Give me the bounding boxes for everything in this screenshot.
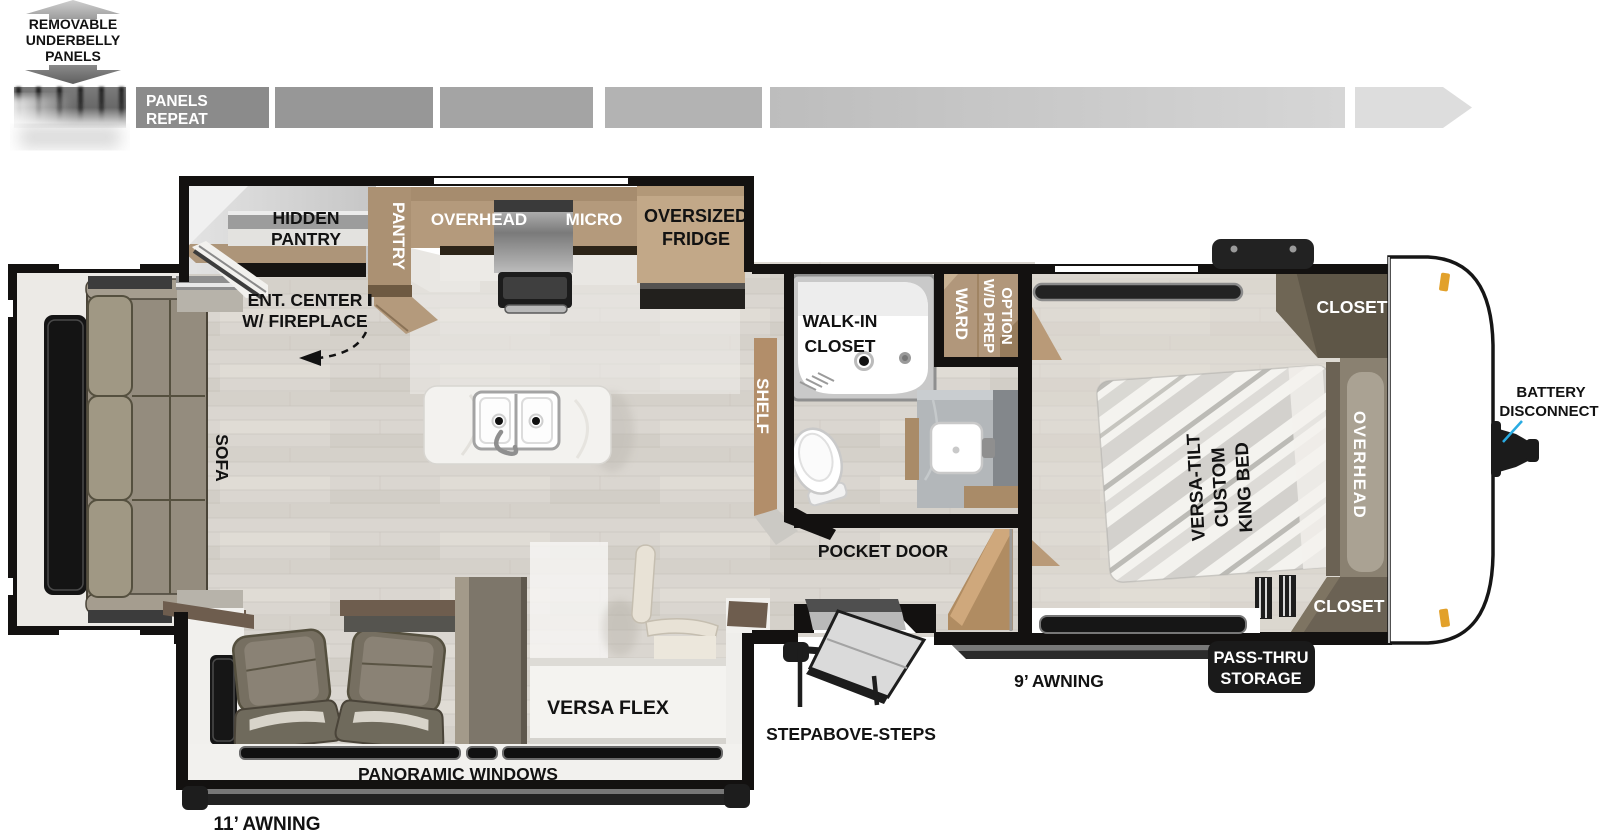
svg-text:OVERHEAD: OVERHEAD [1350, 411, 1369, 519]
svg-text:REPEAT: REPEAT [146, 111, 208, 128]
svg-text:BATTERY: BATTERY [1516, 384, 1585, 401]
svg-text:PANORAMIC WINDOWS: PANORAMIC WINDOWS [358, 764, 558, 784]
svg-text:PASS-THRU: PASS-THRU [1213, 649, 1308, 667]
svg-text:MICRO: MICRO [566, 210, 623, 229]
svg-text:9’ AWNING: 9’ AWNING [1014, 671, 1104, 691]
svg-text:STEPABOVE-STEPS: STEPABOVE-STEPS [766, 724, 936, 744]
svg-text:CLOSET: CLOSET [1317, 297, 1388, 317]
svg-text:REMOVABLE: REMOVABLE [29, 16, 117, 32]
svg-text:CUSTOM: CUSTOM [1207, 447, 1232, 528]
svg-text:11’ AWNING: 11’ AWNING [214, 814, 321, 832]
svg-text:POCKET DOOR: POCKET DOOR [818, 541, 949, 561]
svg-text:WARD: WARD [952, 288, 971, 340]
svg-text:SOFA: SOFA [212, 434, 232, 482]
svg-text:WALK-IN: WALK-IN [803, 311, 878, 331]
svg-text:OPTION: OPTION [998, 287, 1015, 345]
svg-text:OVERSIZED: OVERSIZED [644, 206, 748, 226]
svg-text:OVERHEAD: OVERHEAD [431, 210, 527, 229]
svg-text:CLOSET: CLOSET [805, 336, 876, 356]
svg-text:W/ FIREPLACE: W/ FIREPLACE [242, 311, 367, 331]
svg-text:DISCONNECT: DISCONNECT [1499, 403, 1598, 420]
svg-text:PANELS: PANELS [146, 93, 208, 110]
svg-text:HIDDEN: HIDDEN [272, 208, 339, 228]
svg-text:ENT. CENTER: ENT. CENTER [248, 290, 363, 310]
svg-text:VERSA FLEX: VERSA FLEX [547, 697, 669, 719]
svg-text:PANTRY: PANTRY [389, 202, 408, 271]
svg-text:FRIDGE: FRIDGE [662, 229, 730, 249]
svg-text:PANTRY: PANTRY [271, 229, 341, 249]
svg-text:UNDERBELLY: UNDERBELLY [26, 32, 121, 48]
svg-text:CLOSET: CLOSET [1314, 596, 1385, 616]
svg-text:PANELS: PANELS [45, 48, 101, 64]
svg-text:W/D PREP: W/D PREP [980, 279, 997, 353]
svg-text:STORAGE: STORAGE [1220, 670, 1301, 688]
svg-text:SHELF: SHELF [753, 378, 772, 434]
